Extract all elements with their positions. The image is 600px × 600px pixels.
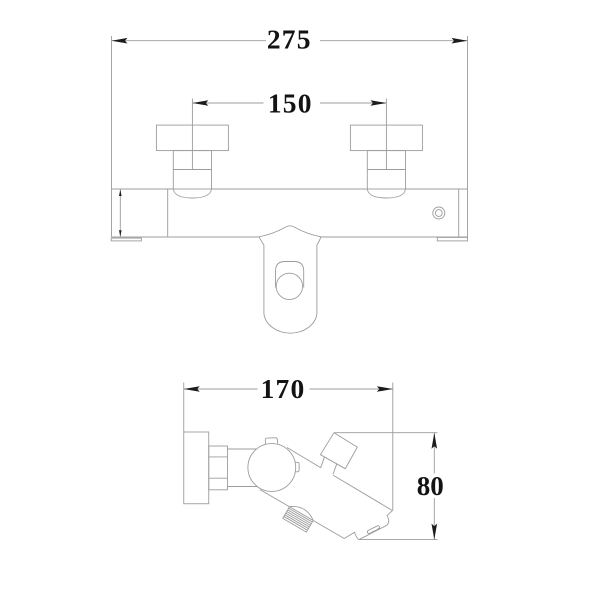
svg-text:275: 275 (267, 24, 312, 55)
svg-text:80: 80 (417, 471, 444, 501)
svg-text:170: 170 (261, 373, 306, 404)
svg-text:150: 150 (268, 88, 313, 119)
